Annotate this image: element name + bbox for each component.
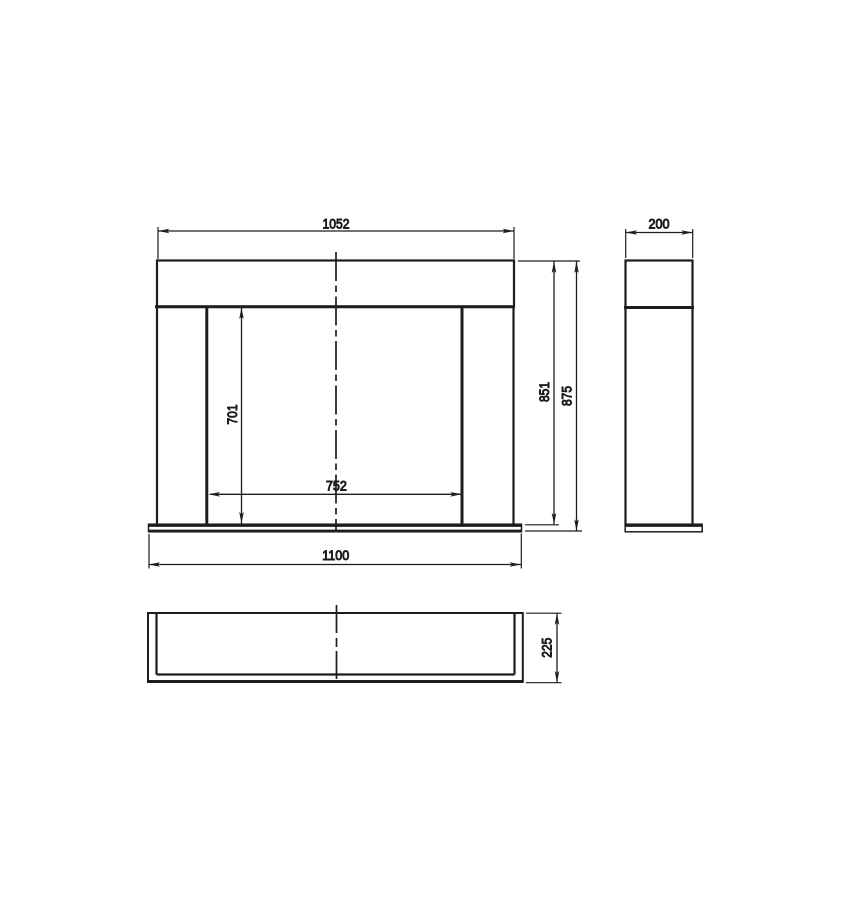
svg-text:200: 200	[649, 216, 670, 232]
svg-text:851: 851	[536, 382, 552, 402]
svg-text:1100: 1100	[322, 547, 349, 563]
svg-text:701: 701	[224, 404, 240, 424]
svg-text:1052: 1052	[323, 216, 350, 232]
svg-text:225: 225	[539, 638, 555, 658]
svg-text:875: 875	[558, 386, 574, 406]
svg-text:752: 752	[326, 478, 347, 494]
